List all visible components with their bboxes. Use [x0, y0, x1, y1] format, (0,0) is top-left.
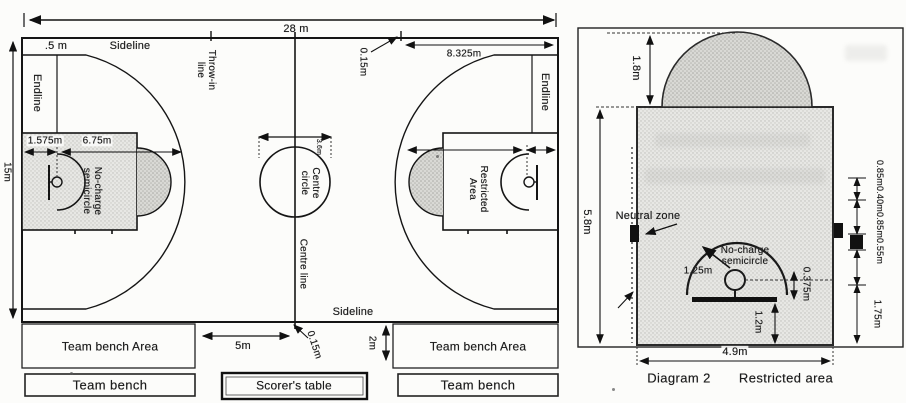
scan-smudge	[655, 133, 810, 147]
label-team-bench-area-left: Team bench Area	[62, 340, 158, 353]
scan-dot	[436, 155, 439, 158]
caption-diagram-title: Restricted area	[739, 372, 833, 387]
dim-backboard-offset: 1.575m	[27, 135, 64, 146]
dim-court-length: 28 m	[283, 23, 308, 35]
label-centre-line: Centre line	[297, 239, 308, 290]
label-neutral-zone: Neutral zone	[616, 210, 681, 222]
dim-centre-circle: 3.6m	[314, 139, 322, 155]
label-no-charge-semicircle: No-charge semicircle	[81, 163, 103, 219]
dim-backboard-distance: 1.2m	[752, 310, 763, 333]
label-sideline-bottom: Sideline	[333, 306, 374, 318]
scan-smudge	[845, 45, 887, 61]
scan-smudge	[645, 168, 825, 184]
dim-lane-width: 4.9m	[721, 346, 748, 358]
label-centre-circle: Centre circle	[299, 163, 321, 203]
dim-lane-length: 5.8m	[581, 209, 593, 234]
dim-line-ext-top: 0.15m	[357, 48, 368, 77]
label-scorers-table: Scorer's table	[256, 379, 332, 392]
label-team-bench-left: Team bench	[73, 379, 148, 394]
dim-semicircle-radius: 1.8m	[630, 55, 642, 80]
label-team-bench-right: Team bench	[441, 379, 516, 394]
scan-dot	[612, 388, 615, 391]
dim-bench-depth: 2m	[366, 336, 377, 350]
scan-dot	[70, 372, 73, 375]
label-endline-left: Endline	[31, 74, 43, 112]
dim-three-point: 6.75m	[82, 135, 113, 146]
caption-diagram-number: Diagram 2	[647, 372, 711, 387]
dim-corner: .5 m	[45, 40, 67, 52]
label-throw-in-line: Throw-in line	[195, 41, 217, 99]
label-restricted-area: Restricted Area	[467, 161, 489, 217]
dim-lane-spaces: 0.85m0.40m0.85m0.55m	[875, 160, 885, 264]
scanned-basketball-court-figure: 28 m 15m .5 m Sideline Sideline Endline …	[0, 0, 906, 403]
label-team-bench-area-right: Team bench Area	[430, 340, 526, 353]
dim-first-space: 1.75m	[871, 300, 882, 329]
dim-bench-gap: 5m	[235, 340, 251, 352]
label-no-charge-semicircle-2: No-charge semicircle	[714, 245, 776, 267]
dim-throw-in-distance: 8.325m	[447, 48, 482, 59]
dim-ring-offset: 0.375m	[800, 267, 811, 302]
label-endline-right: Endline	[539, 73, 551, 111]
dim-no-charge-radius: 1.25m	[684, 265, 713, 276]
label-sideline-top: Sideline	[110, 40, 151, 52]
dim-court-width: 15m	[1, 162, 12, 182]
